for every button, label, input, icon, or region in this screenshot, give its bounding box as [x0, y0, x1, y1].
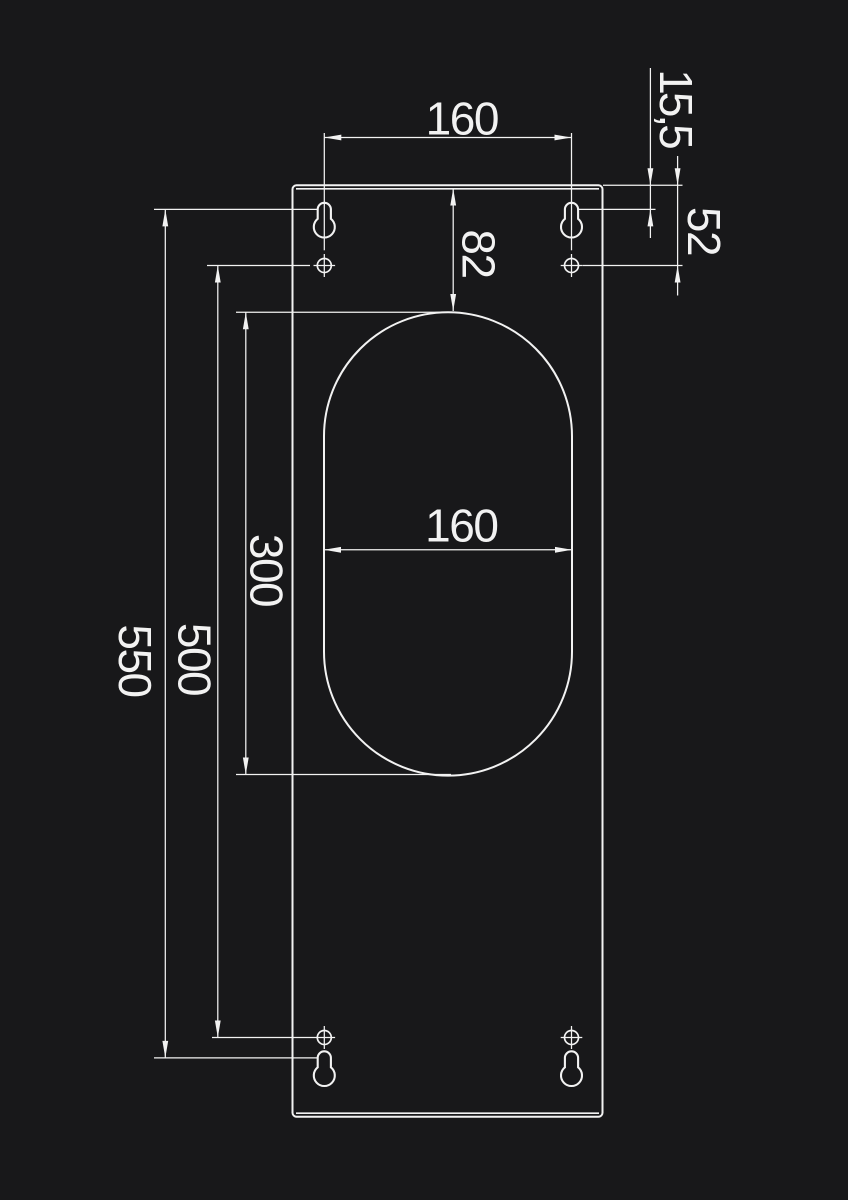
svg-text:82: 82 [453, 229, 505, 277]
svg-text:160: 160 [425, 499, 497, 551]
svg-text:300: 300 [241, 534, 293, 606]
svg-text:52: 52 [678, 207, 730, 255]
svg-text:160: 160 [426, 92, 498, 144]
svg-text:500: 500 [169, 623, 221, 695]
svg-text:550: 550 [109, 624, 161, 696]
svg-text:15,5: 15,5 [650, 69, 702, 148]
